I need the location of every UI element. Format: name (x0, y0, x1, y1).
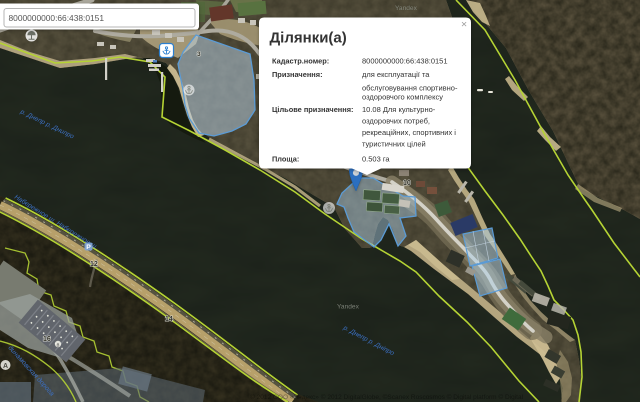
svg-text:8000000000:66:438:0151: 8000000000:66:438:0151 (9, 13, 105, 23)
svg-text:0.503 га: 0.503 га (362, 155, 390, 164)
svg-text:P: P (86, 244, 91, 251)
svg-text:Yandex: Yandex (337, 304, 360, 311)
svg-text:10.08 Для культурно-: 10.08 Для культурно- (362, 105, 436, 114)
svg-text:обслуговування спортивно-: обслуговування спортивно- (362, 84, 458, 93)
svg-text:3: 3 (197, 51, 201, 58)
svg-text:Ділянки(а): Ділянки(а) (270, 30, 347, 47)
svg-text:A: A (3, 363, 8, 370)
svg-text:Призначення:: Призначення: (272, 70, 323, 79)
svg-text:8000000000:66:438:0151: 8000000000:66:438:0151 (362, 57, 448, 66)
svg-text:оздоровчого комплексу: оздоровчого комплексу (362, 93, 443, 102)
svg-text:Площа:: Площа: (272, 155, 299, 164)
svg-text:в: в (57, 343, 60, 349)
svg-text:12: 12 (90, 261, 98, 268)
svg-text:оздоровчих потреб,: оздоровчих потреб, (362, 117, 430, 126)
svg-text:16: 16 (43, 336, 51, 343)
svg-text:Кадастр.номер:: Кадастр.номер: (272, 57, 329, 66)
svg-text:туристичних цілей: туристичних цілей (362, 140, 426, 149)
svg-text:×: × (461, 19, 467, 31)
svg-text:© 2012 ООО «Яндекс» © 2012 Di: © 2012 ООО «Яндекс» © 2012 DigitalGlobe,… (250, 393, 524, 401)
svg-text:10: 10 (403, 180, 411, 187)
svg-text:для експлуатації та: для експлуатації та (362, 70, 430, 79)
svg-text:рекреаційних, спортивних і: рекреаційних, спортивних і (362, 128, 456, 137)
svg-text:14: 14 (165, 316, 173, 323)
svg-text:Yandex: Yandex (395, 5, 418, 12)
svg-text:Цільове призначення:: Цільове призначення: (272, 105, 354, 114)
